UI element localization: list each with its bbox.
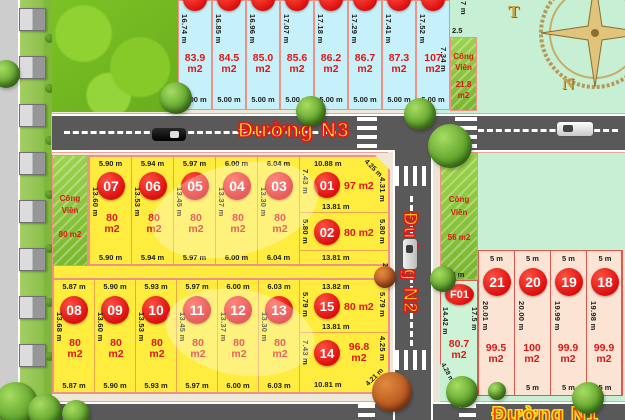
lot: 5 m 19 19.99 m 99.9m2 5 m — [551, 251, 587, 395]
lot-dimension: 13.81 m — [322, 253, 350, 262]
lot-area: 83.9m2 — [179, 53, 211, 75]
lot-dimension: 5.00 m — [349, 95, 381, 104]
tree-icon — [160, 82, 192, 114]
park-label: Công — [441, 195, 477, 204]
lot-dimension: 5 m — [515, 254, 550, 263]
lot-dimension: 20.01 m — [481, 301, 490, 331]
lot-dimension: 5.00 m — [247, 95, 279, 104]
lot-dimension: 7 m — [459, 1, 468, 15]
compass-west-label: T — [508, 2, 519, 22]
lot-dimension: 5.90 m — [90, 253, 131, 262]
lot-number-badge: 21 — [483, 268, 511, 296]
lot-dimension: 16.74 m — [180, 14, 189, 44]
park-label: m2 — [451, 91, 476, 100]
tree-icon — [572, 382, 604, 414]
lot-dimension: 17.52 m — [418, 14, 427, 44]
compass-rose — [528, 0, 625, 100]
lot-number-badge: 18 — [591, 268, 619, 296]
crosswalk — [395, 350, 432, 370]
lot-dimension: 5.87 m — [54, 381, 94, 390]
house-icon — [19, 296, 46, 319]
house-icon — [19, 56, 46, 79]
lot: 17.52 m 107m2 7.34 m 5.00 m — [416, 0, 450, 110]
park-east: Công Viên 56 m2 — [440, 152, 478, 280]
park-label: 21.8 — [451, 80, 476, 89]
car-icon — [556, 121, 594, 137]
lot-number-badge: 09 — [101, 296, 129, 324]
lot-number-badge — [421, 0, 445, 11]
lot-area: 99.5m2 — [479, 343, 513, 365]
lot-area: 80 m2 — [344, 227, 374, 239]
lot-area: 80.7m2 — [443, 339, 475, 361]
lot: 5.90 m 09 13.60 m 80m2 5.90 m — [95, 280, 136, 392]
crosswalk — [357, 117, 377, 150]
lot: 17.18 m 86.2m2 5.00 m — [314, 0, 348, 110]
lot-area: 96.8m2 — [342, 342, 376, 364]
subdivision-map: 16.74 m 83.9m2 5.00 m 16.85 m 84.5m2 5.0… — [0, 0, 625, 420]
crosswalk — [358, 404, 375, 419]
lot-dimension: 5.97 m — [177, 381, 217, 390]
lot-dimension: 5 m — [551, 254, 586, 263]
house-icon — [19, 344, 46, 367]
lot-dimension: 5.93 m — [136, 381, 176, 390]
lot-number-badge: 20 — [519, 268, 547, 296]
park-label: Công — [451, 52, 476, 61]
tree-icon — [28, 394, 62, 420]
park-dimension: 2.5 — [452, 26, 462, 35]
lot-dimension: 4.31 m — [378, 177, 387, 202]
top-lot-strip: 16.74 m 83.9m2 5.00 m 16.85 m 84.5m2 5.0… — [178, 0, 450, 110]
lot-number-badge: 08 — [60, 296, 88, 324]
lot-number-badge — [353, 0, 377, 11]
house-icon — [19, 104, 46, 127]
lot-dimension: 4.25 m — [363, 158, 383, 178]
lot: 17.29 m 86.7m2 5.00 m — [348, 0, 382, 110]
lot-dimension: 17.41 m — [384, 14, 393, 44]
lot-number-badge — [285, 0, 309, 11]
lot-dimension: 13.81 m — [322, 322, 350, 331]
tree-icon — [62, 400, 90, 420]
lot-dimension: 13.82 m — [322, 282, 350, 291]
tree-icon — [430, 266, 456, 292]
crosswalk — [395, 166, 432, 186]
lot-number-badge — [217, 0, 241, 11]
tree-icon — [446, 376, 478, 408]
lot-dimension: 5.94 m — [132, 253, 173, 262]
car-window — [563, 125, 573, 132]
tree-icon — [428, 124, 472, 168]
lot-number-badge — [387, 0, 411, 11]
park-label: 80 m2 — [53, 230, 87, 239]
lot-area: 99.9m2 — [551, 343, 585, 365]
lot-dimension: 5.90 m — [95, 381, 135, 390]
park-label: Viên — [441, 208, 477, 217]
lot-number-badge — [251, 0, 275, 11]
lot: 5 m 20 20.00 m 100m2 5 m — [515, 251, 551, 395]
lot-dimension: 5 m — [479, 254, 514, 263]
lot-dimension: 17.07 m — [282, 14, 291, 44]
lot-dimension: 6.03 m — [259, 381, 299, 390]
lot-dimension: 5.87 m — [54, 282, 94, 291]
tree-icon — [296, 96, 326, 126]
lot-area: 84.5m2 — [213, 53, 245, 75]
park-label: 56 m2 — [441, 233, 477, 242]
tree-icon — [488, 382, 506, 400]
lot-area: 85.0m2 — [247, 53, 279, 75]
road-label-n3: Đường N3 — [238, 119, 350, 143]
lot-dimension: 19.98 m — [589, 301, 598, 331]
lot-dimension: 5.79 m — [378, 292, 387, 317]
house-icon — [19, 248, 46, 271]
lot-dimension: 5.79 m — [301, 292, 310, 317]
lot-dimension: 19.99 m — [553, 301, 562, 331]
lot-dimension: 5.97 m — [174, 159, 215, 168]
house-icon — [19, 200, 46, 223]
lot-number-badge: 14 — [314, 340, 340, 366]
lot-area: 80m2 — [59, 338, 91, 360]
grass-field — [52, 0, 178, 112]
lot: 17.41 m 87.3m2 5.00 m — [382, 0, 416, 110]
lot: 16.96 m 85.0m2 5.00 m — [246, 0, 280, 110]
lot-number-badge: 19 — [555, 268, 583, 296]
park-label: Công — [53, 194, 87, 203]
lot-number-badge: 06 — [139, 172, 167, 200]
lot-dimension: 6.04 m — [258, 253, 299, 262]
park-label: Viên — [451, 63, 476, 72]
car-icon — [152, 128, 186, 141]
lot-divider — [300, 250, 388, 251]
lot-area: 97 m2 — [344, 180, 374, 192]
lot: 5.87 m 08 13.68 m 80m2 5.87 m — [54, 280, 95, 392]
lot-dimension: 5.94 m — [132, 159, 173, 168]
park-west: Công Viên 80 m2 — [52, 155, 88, 266]
east-lot-block: 5 m 21 20.01 m 99.5m2 5 m 5 m 20 20.00 m… — [478, 250, 622, 396]
house-icon — [19, 8, 46, 31]
lot-dimension: 17.29 m — [350, 14, 359, 44]
tree-icon — [372, 372, 412, 412]
lot-area: 87.3m2 — [383, 53, 415, 75]
lot-area: 85.6m2 — [281, 53, 313, 75]
lot-area: 80m2 — [100, 338, 132, 360]
alley — [52, 266, 390, 278]
lot-dimension: 14.42 m — [441, 307, 448, 335]
lot-number-badge: 07 — [97, 172, 125, 200]
house-icon — [19, 152, 46, 175]
lot-dimension: 13.81 m — [322, 202, 350, 211]
tree-icon — [374, 266, 396, 288]
lot-dimension: 5.93 m — [136, 282, 176, 291]
compass-south-label: N — [562, 74, 574, 94]
lot-dimension: 5.90 m — [95, 282, 135, 291]
lot-area: 80m2 — [96, 213, 128, 235]
lot-dimension: 20.00 m — [517, 301, 526, 331]
lot: 17.07 m 85.6m2 5.00 m — [280, 0, 314, 110]
lot-area: 100m2 — [515, 343, 549, 365]
lot-area: 80m2 — [141, 338, 173, 360]
lot: 16.85 m 84.5m2 5.00 m — [212, 0, 246, 110]
park-top: Công Viên 21.8 m2 — [450, 37, 477, 111]
lot-area: 86.7m2 — [349, 53, 381, 75]
car-window — [170, 131, 179, 138]
lot-dimension: 17.18 m — [316, 14, 325, 44]
centerline-n3-east — [478, 129, 618, 132]
lot-dimension: 4.25 m — [378, 336, 387, 361]
car-icon — [402, 238, 418, 270]
lot-dimension: 6.03 m — [259, 282, 299, 291]
lot-area: 86.2m2 — [315, 53, 347, 75]
lot-number-badge — [319, 0, 343, 11]
tree-icon — [404, 98, 436, 130]
lot: 5.90 m 07 13.60 m 80m2 5.90 m — [90, 157, 132, 264]
lot-number-badge: 02 — [314, 219, 340, 245]
lot-dimension: 16.85 m — [214, 14, 223, 44]
lot-dimension: 7.34 m — [439, 47, 448, 72]
lot-dimension: 16.96 m — [248, 14, 257, 44]
compass-icon — [528, 0, 625, 100]
lot-dimension: 5 m — [515, 383, 550, 392]
lot-dimension: 17.5 m — [470, 307, 477, 331]
car-window — [406, 245, 413, 253]
lot-dimension: 5.90 m — [90, 159, 131, 168]
park-label: Viên — [53, 206, 87, 215]
lot-dimension: 5 m — [587, 254, 623, 263]
lot: 5 m 21 20.01 m 99.5m2 5 m — [479, 251, 515, 395]
lot: 5 m 18 19.98 m 99.9m2 5 m — [587, 251, 623, 395]
lot-dimension: 10.88 m — [314, 159, 342, 168]
lot-dimension: 5.80 m — [378, 219, 387, 244]
lot-number-badge — [183, 0, 207, 11]
lot-dimension: 10.81 m — [314, 380, 342, 389]
lot-area: 80 m2 — [344, 301, 374, 313]
lot-area: 99.9m2 — [587, 343, 621, 365]
lot-dimension: 5.00 m — [213, 95, 245, 104]
lot-dimension: 6.00 m — [218, 381, 258, 390]
lot-number-badge: 15 — [314, 293, 340, 319]
